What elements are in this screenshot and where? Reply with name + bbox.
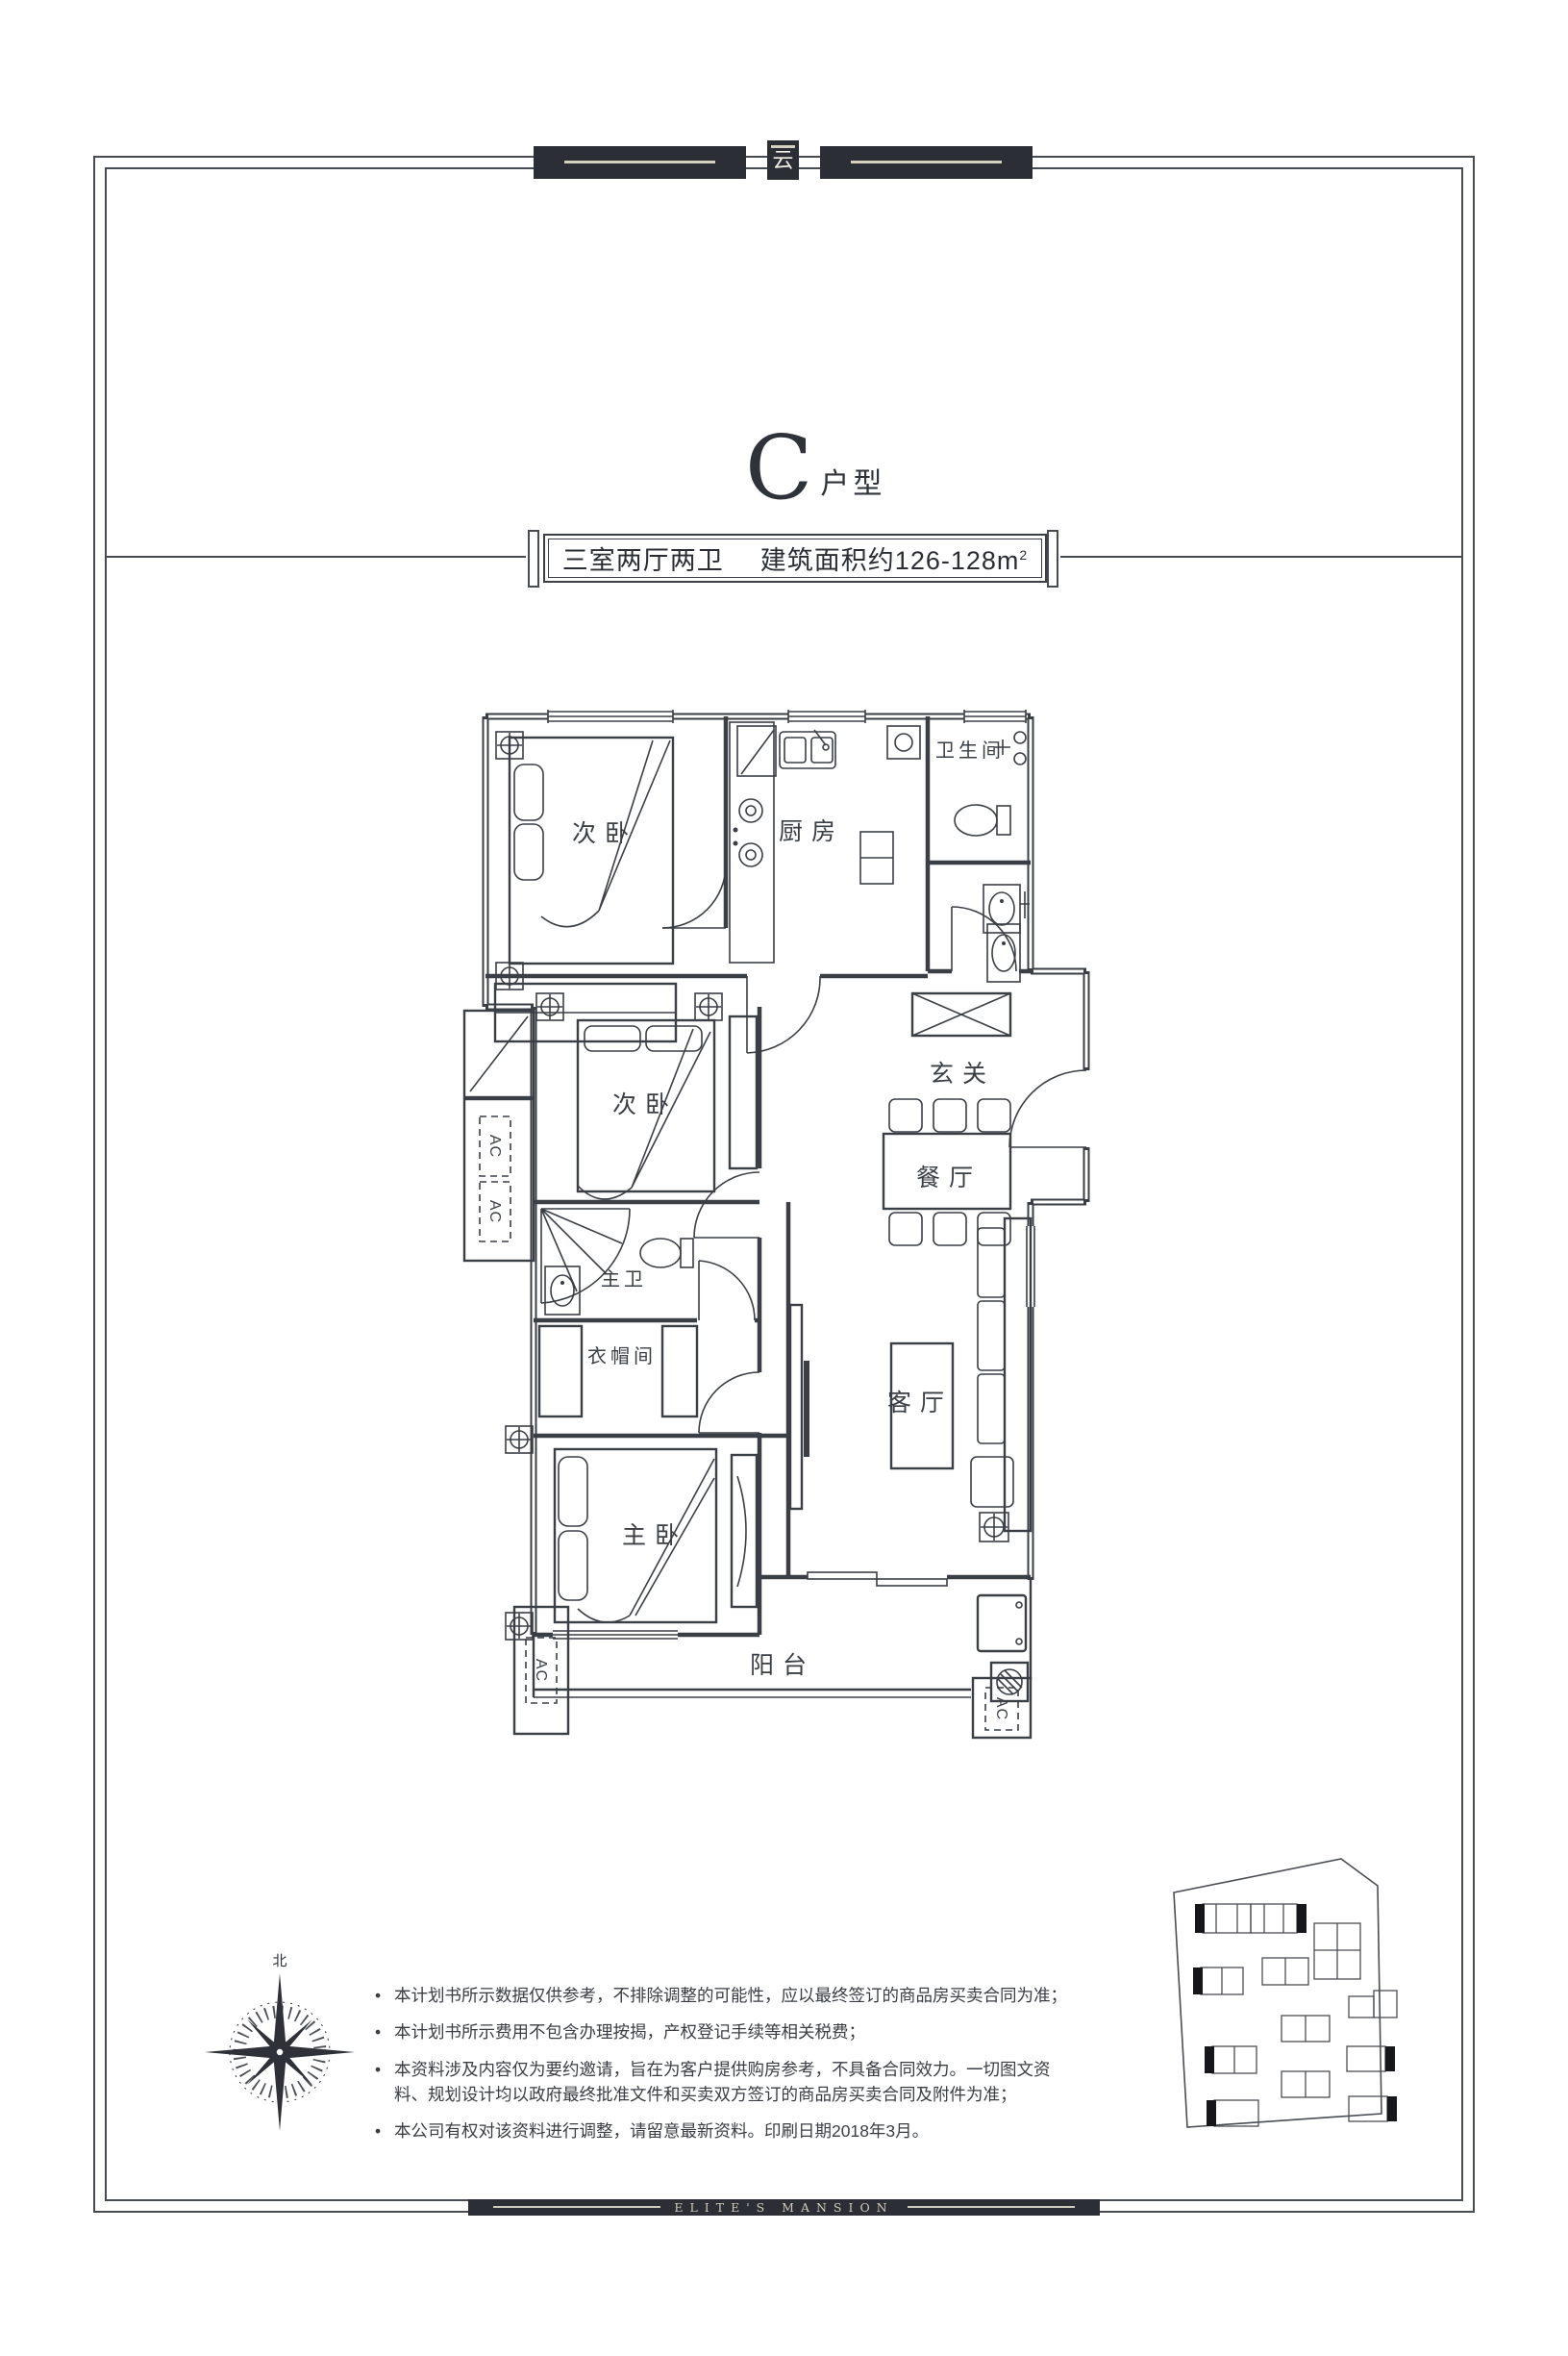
- master-bath-fixtures: [541, 1209, 693, 1315]
- header-bar-right: [820, 146, 1033, 179]
- ac-platform-left: AC AC: [464, 1099, 534, 1261]
- cloakroom-wardrobe-right: [662, 1326, 697, 1416]
- spec-rule-right: [1060, 556, 1461, 558]
- window-top-kitchen: [788, 710, 865, 723]
- compass-north-label: 北: [272, 1953, 286, 1969]
- room-label-bedroom-mid: 次卧: [612, 1090, 678, 1118]
- room-label-living: 客厅: [887, 1389, 953, 1416]
- window-top-bath: [964, 710, 1026, 723]
- disclaimer-item: 本资料涉及内容仅为要约邀请，旨在为客户提供购房参考，不具备合同效力。一切图文资料…: [373, 2057, 1069, 2108]
- door-master-bath: [699, 1261, 755, 1320]
- ac-label-right: AC: [993, 1697, 1009, 1720]
- foyer-shaft: [912, 993, 1010, 1036]
- disclaimer-item: 本公司有权对该资料进行调整，请留意最新资料。印刷日期2018年3月。: [373, 2118, 1069, 2143]
- washing-machine: [978, 1595, 1028, 1701]
- room-label-balcony: 阳台: [750, 1651, 815, 1679]
- window-top-bedroom: [548, 710, 673, 723]
- disclaimer: 本计划书所示数据仅供参考，不排除调整的可能性，应以最终签订的商品房买卖合同为准；…: [373, 1983, 1069, 2155]
- spec-box: 三室两厅两卫 建筑面积约126-128m2: [543, 534, 1047, 583]
- room-label-bathroom: 卫生间: [935, 739, 1005, 762]
- room-label-master-bath: 主卫: [601, 1267, 647, 1291]
- door-balcony-slider: [808, 1572, 947, 1586]
- brand-emblem: 云: [767, 140, 799, 180]
- unit-letter: C: [745, 431, 812, 506]
- spec-tick-right: [1047, 530, 1058, 588]
- spec-rule-left: [107, 556, 526, 558]
- floorplan-drawing: 次卧 厨房 卫生间: [457, 688, 1101, 1745]
- unit-title: C 户型: [745, 431, 885, 506]
- spec-layout: 三室两厅两卫: [562, 539, 724, 577]
- spec-tick-left: [528, 530, 539, 588]
- header-bar-left-stripe: [564, 161, 715, 163]
- living-furniture: [790, 1218, 1031, 1531]
- room-label-foyer: 玄关: [930, 1060, 995, 1088]
- brand-emblem-stripe: [771, 145, 795, 148]
- site-key-plan: [1158, 1844, 1413, 2138]
- bathroom-fixtures: [955, 732, 1030, 933]
- bed-top: [510, 738, 673, 964]
- door-master-bedroom: [699, 1372, 759, 1433]
- floorplan-page: 云 C 户型 三室两厅两卫 建筑面积约126-128m2: [0, 0, 1568, 2356]
- exterior-walls: [485, 716, 1086, 1635]
- brand-emblem-glyph: 云: [772, 149, 793, 173]
- compass: 北: [195, 1944, 364, 2133]
- disclaimer-item: 本计划书所示费用不包含办理按揭，产权登记手续等相关税费；: [373, 2019, 1069, 2044]
- bay-window-left: [464, 1011, 534, 1097]
- disclaimer-item: 本计划书所示数据仅供参考，不排除调整的可能性，应以最终签订的商品房买卖合同为准；: [373, 1983, 1069, 2008]
- spec-box-inner: 三室两厅两卫 建筑面积约126-128m2: [548, 539, 1042, 578]
- cloakroom-wardrobe-left: [539, 1326, 582, 1416]
- ac-label-bottom-left: AC: [533, 1659, 549, 1682]
- spec-area: 建筑面积约126-128m2: [760, 539, 1028, 577]
- disclaimer-list: 本计划书所示数据仅供参考，不排除调整的可能性，应以最终签订的商品房买卖合同为准；…: [373, 1983, 1069, 2143]
- room-label-master-bedroom: 主卧: [622, 1521, 687, 1549]
- room-label-dining: 餐厅: [916, 1164, 982, 1191]
- room-label-bedroom-top: 次卧: [572, 819, 637, 847]
- room-label-cloakroom: 衣帽间: [587, 1344, 657, 1367]
- room-label-kitchen: 厨房: [779, 817, 844, 845]
- door-entry: [1009, 1070, 1086, 1147]
- header-bar-right-stripe: [851, 161, 1002, 163]
- window-master-balcony: [553, 1628, 678, 1642]
- unit-suffix: 户型: [820, 460, 885, 502]
- header-bar-left: [534, 146, 746, 179]
- door-bedroom-mid: [694, 1172, 759, 1238]
- ac-label-left-1: AC: [486, 1135, 503, 1158]
- footer-band: ELITE'S MANSION: [468, 2199, 1100, 2216]
- corridor-wardrobe: [730, 1016, 757, 1168]
- ac-label-left-2: AC: [486, 1200, 503, 1223]
- footer-brand: ELITE'S MANSION: [660, 2200, 907, 2215]
